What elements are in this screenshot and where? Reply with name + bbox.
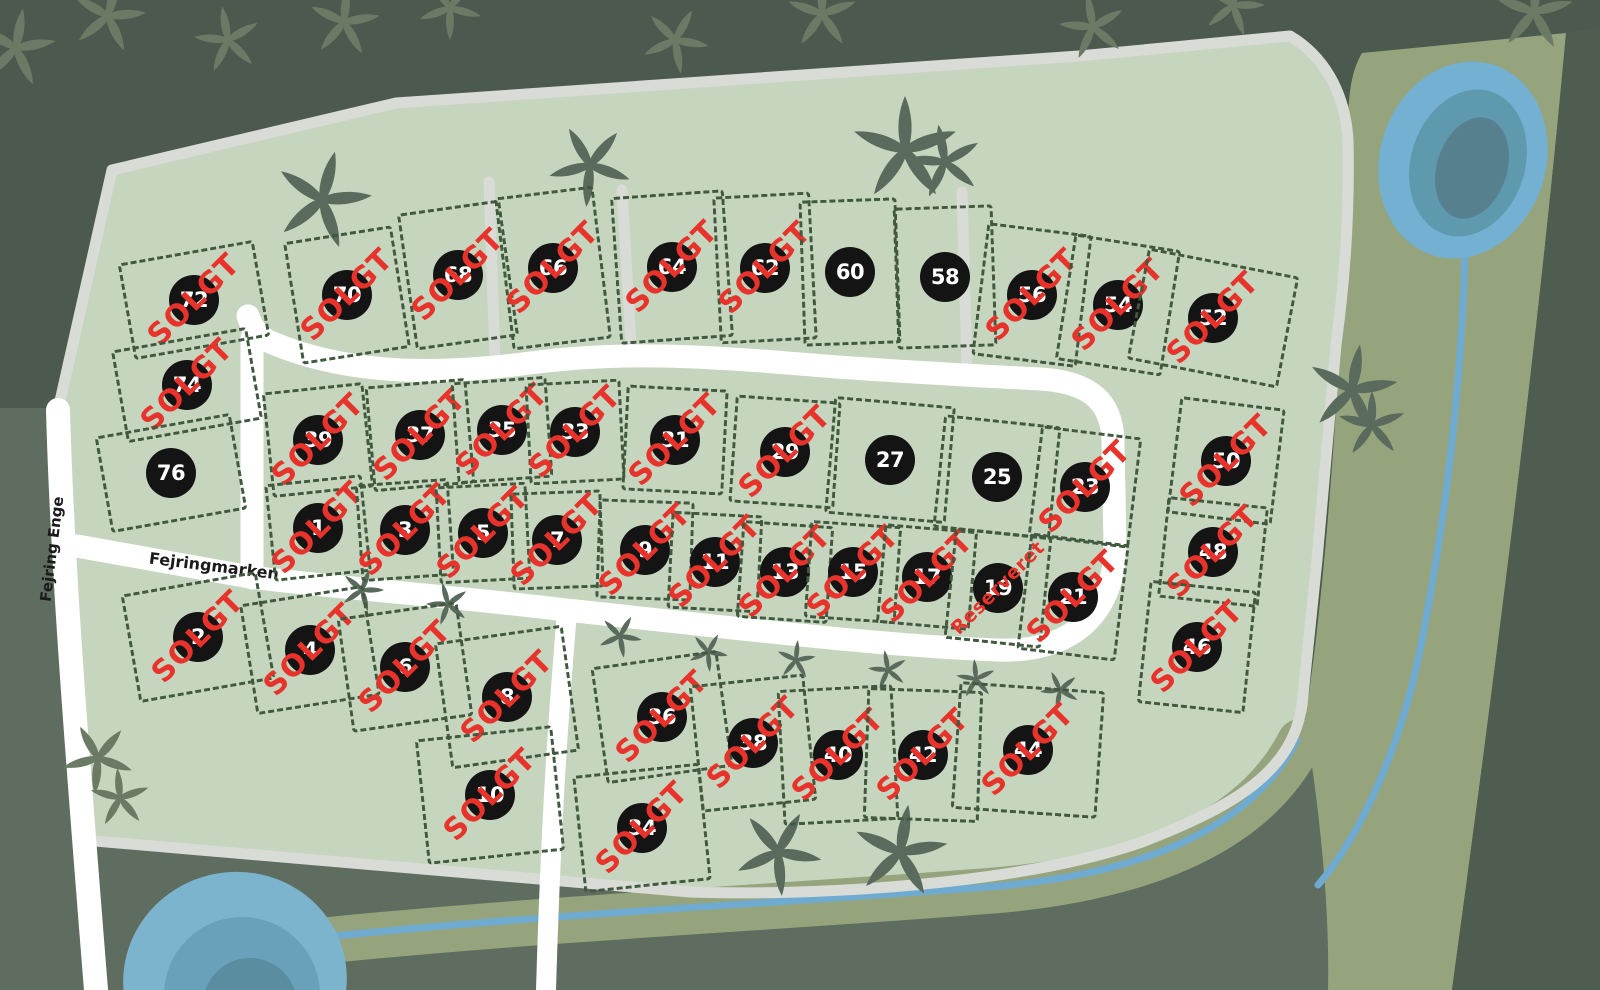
plot-number-badge: 76 [146,448,196,498]
plot-number-badge: 60 [825,247,875,297]
plot-number: 76 [157,461,185,485]
plots-layer: 72 SOLGT 74 SOLGT 76 70 SOLGT 68 SOLGT [0,0,1600,990]
plot-number-badge: 25 [972,452,1022,502]
plot-number: 25 [983,465,1011,489]
plot-number: 58 [931,265,959,289]
plot-number: 60 [836,260,864,284]
plot-number-badge: 27 [865,435,915,485]
site-map: Fejring Enge Fejringmarken 72 SOLGT 74 S… [0,0,1600,990]
plot-number: 27 [876,448,904,472]
plot-number-badge: 58 [920,252,970,302]
